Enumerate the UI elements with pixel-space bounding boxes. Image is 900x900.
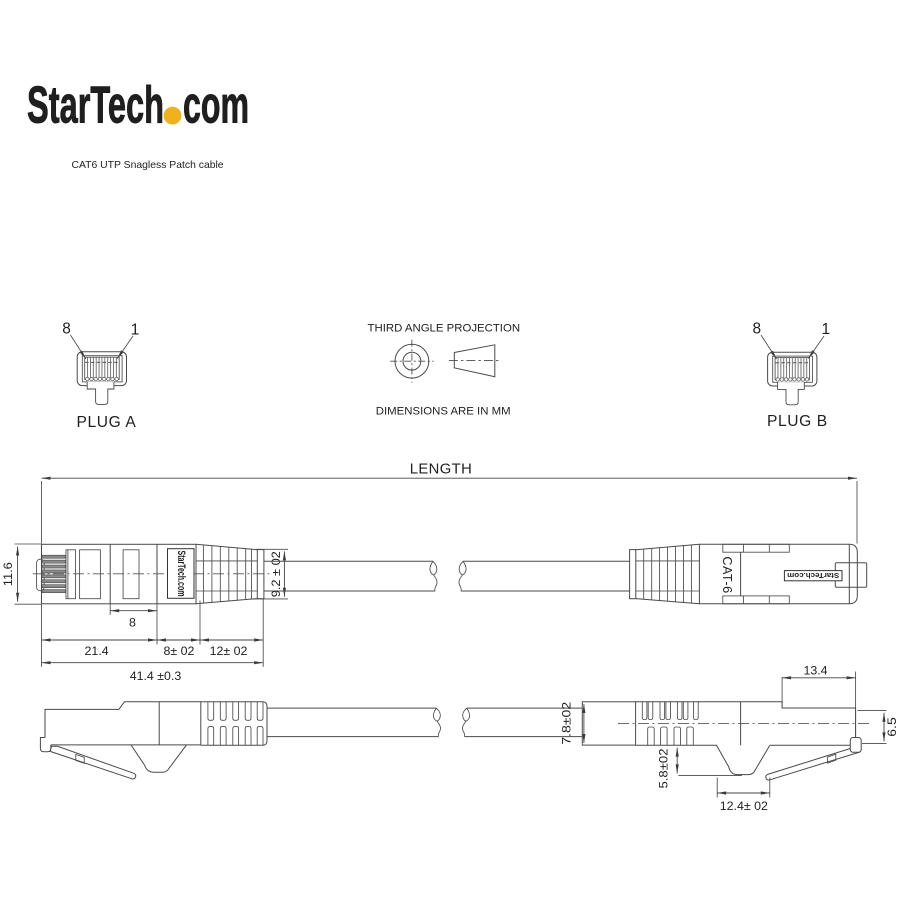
svg-text:8: 8 — [753, 320, 762, 337]
svg-text:PLUG B: PLUG B — [767, 413, 828, 430]
svg-text:LENGTH: LENGTH — [410, 461, 472, 477]
svg-text:13.4: 13.4 — [803, 663, 827, 677]
svg-text:StarTech: StarTech — [27, 77, 164, 135]
svg-text:CAT6 UTP Snagless Patch cable: CAT6 UTP Snagless Patch cable — [72, 160, 224, 171]
svg-text:12± 02: 12± 02 — [210, 644, 248, 658]
svg-text:StarTech.com: StarTech.com — [787, 571, 839, 580]
svg-text:PLUG A: PLUG A — [77, 414, 137, 431]
svg-text:1: 1 — [131, 322, 140, 339]
svg-text:7.8±02: 7.8±02 — [560, 702, 574, 745]
svg-text:StarTech.com: StarTech.com — [175, 551, 187, 597]
svg-text:1: 1 — [822, 321, 831, 338]
svg-text:8± 02: 8± 02 — [164, 644, 195, 658]
svg-text:DIMENSIONS ARE IN MM: DIMENSIONS ARE IN MM — [376, 405, 511, 417]
svg-text:11.6: 11.6 — [1, 562, 15, 586]
svg-text:6.5: 6.5 — [885, 717, 899, 737]
svg-text:12.4± 02: 12.4± 02 — [720, 799, 768, 813]
svg-text:8: 8 — [129, 615, 136, 629]
svg-text:41.4 ±0.3: 41.4 ±0.3 — [130, 669, 182, 683]
svg-text:THIRD ANGLE PROJECTION: THIRD ANGLE PROJECTION — [368, 323, 521, 335]
svg-text:9.2 ± 02: 9.2 ± 02 — [269, 551, 283, 597]
svg-text:21.4: 21.4 — [85, 644, 109, 658]
svg-text:5.8±02: 5.8±02 — [657, 748, 671, 788]
svg-text:CAT-6: CAT-6 — [720, 556, 734, 593]
svg-text:8: 8 — [62, 321, 71, 338]
svg-text:com: com — [183, 77, 249, 135]
